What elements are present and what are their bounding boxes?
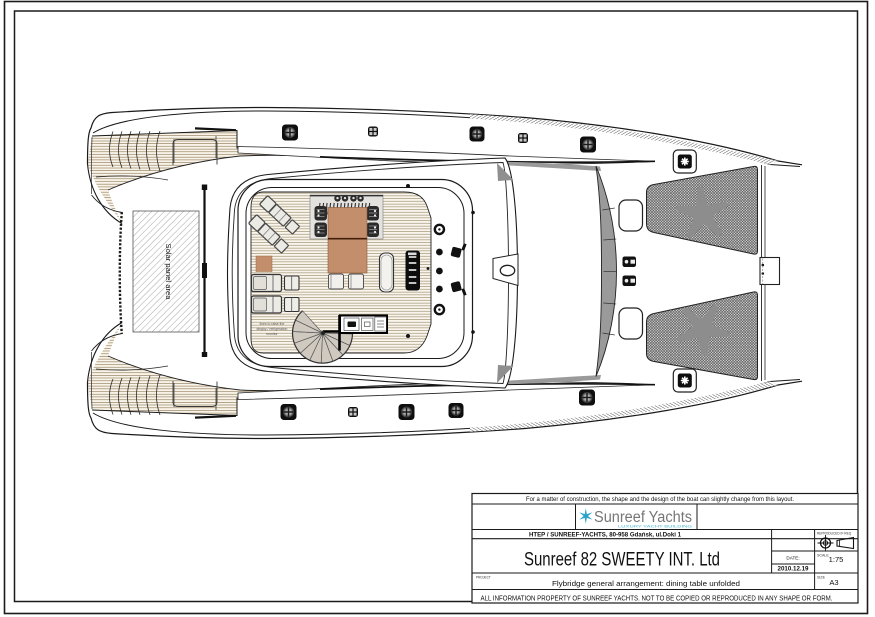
svg-text:SCALE: SCALE <box>817 554 829 558</box>
svg-text:Flybridge general arrangement:: Flybridge general arrangement: dining ta… <box>552 579 740 588</box>
svg-text:PROJECT: PROJECT <box>476 576 491 580</box>
svg-text:Solar panel area: Solar panel area <box>164 244 171 300</box>
svg-text:1:75: 1:75 <box>829 555 844 564</box>
svg-text:lines to raise the: lines to raise the <box>260 322 285 326</box>
svg-text:LUXURY YACHT BUILDING: LUXURY YACHT BUILDING <box>618 525 692 529</box>
svg-text:ALL INFORMATION PROPERTY OF SU: ALL INFORMATION PROPERTY OF SUNREEF YACH… <box>481 596 833 603</box>
svg-text:Sunreef 82 SWEETY INT. Ltd: Sunreef 82 SWEETY INT. Ltd <box>524 550 720 571</box>
svg-text:A3: A3 <box>829 578 838 587</box>
svg-text:Sunreef Yachts: Sunreef Yachts <box>594 509 692 526</box>
svg-text:monitor: monitor <box>266 332 278 336</box>
svg-text:REPRODUCED IF REQ: REPRODUCED IF REQ <box>817 532 852 536</box>
svg-text:dinghy / refrigeration: dinghy / refrigeration <box>257 327 288 331</box>
svg-text:SIZE: SIZE <box>817 576 826 580</box>
svg-text:2010.12.19: 2010.12.19 <box>778 566 810 573</box>
svg-text:HTEP / SUNREEF-YACHTS, 80-958: HTEP / SUNREEF-YACHTS, 80-958 Gdańsk, ul… <box>529 533 682 539</box>
svg-text:For a matter of construction,: For a matter of construction, the shape … <box>526 497 794 503</box>
svg-text:DATE:: DATE: <box>786 556 799 561</box>
